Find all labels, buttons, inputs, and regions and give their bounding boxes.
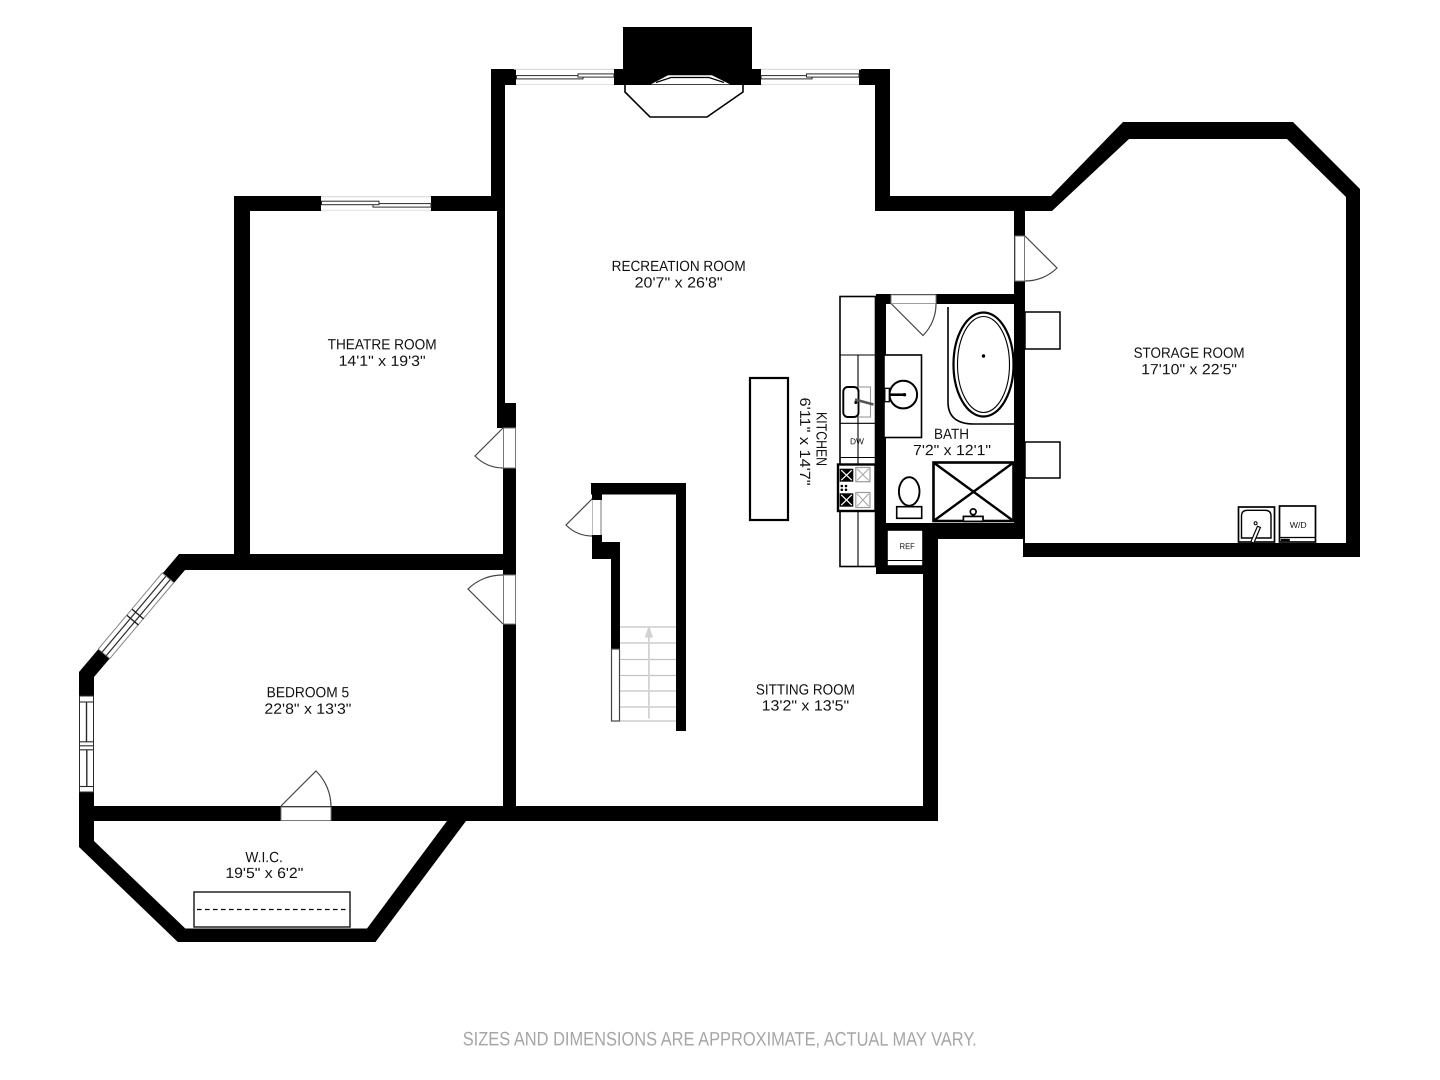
svg-text:22'8" x 13'3": 22'8" x 13'3" <box>264 702 351 718</box>
svg-text:STORAGE ROOM: STORAGE ROOM <box>1134 346 1245 362</box>
svg-text:W.I.C.: W.I.C. <box>245 850 283 866</box>
svg-text:SIZES AND DIMENSIONS ARE APPRO: SIZES AND DIMENSIONS ARE APPROXIMATE, AC… <box>463 1028 977 1050</box>
svg-text:SITTING ROOM: SITTING ROOM <box>756 683 855 699</box>
svg-text:17'10" x 22'5": 17'10" x 22'5" <box>1141 362 1237 378</box>
svg-text:REF: REF <box>900 541 915 551</box>
svg-text:BEDROOM 5: BEDROOM 5 <box>267 685 350 701</box>
svg-text:RECREATION ROOM: RECREATION ROOM <box>612 259 746 275</box>
svg-text:19'5" x 6'2": 19'5" x 6'2" <box>225 866 303 882</box>
svg-text:BATH: BATH <box>934 427 969 443</box>
svg-text:DW: DW <box>850 436 864 446</box>
svg-text:13'2" x 13'5": 13'2" x 13'5" <box>762 699 850 715</box>
svg-text:KITCHEN: KITCHEN <box>813 412 829 466</box>
svg-text:W/D: W/D <box>1290 520 1307 530</box>
svg-text:6'11" x 14'7": 6'11" x 14'7" <box>796 398 812 486</box>
svg-text:7'2" x 12'1": 7'2" x 12'1" <box>913 443 991 459</box>
svg-text:THEATRE ROOM: THEATRE ROOM <box>328 337 437 353</box>
svg-text:14'1" x 19'3": 14'1" x 19'3" <box>339 354 426 370</box>
svg-text:20'7" x 26'8": 20'7" x 26'8" <box>635 275 723 291</box>
